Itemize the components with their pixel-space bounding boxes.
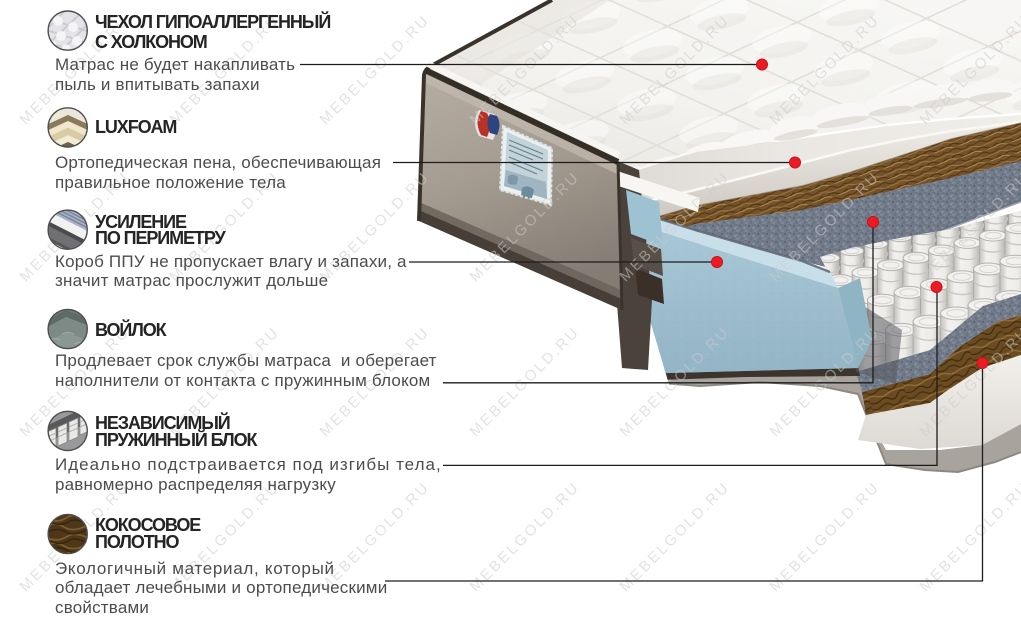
- svg-text:MEBELGOLD.RU: MEBELGOLD.RU: [766, 478, 883, 595]
- svg-text:MEBELGOLD.RU: MEBELGOLD.RU: [466, 323, 583, 440]
- svg-text:MEBELGOLD.RU: MEBELGOLD.RU: [616, 478, 733, 595]
- svg-text:MEBELGOLD.RU: MEBELGOLD.RU: [316, 11, 433, 128]
- svg-text:MEBELGOLD.RU: MEBELGOLD.RU: [466, 478, 583, 595]
- svg-text:MEBELGOLD.RU: MEBELGOLD.RU: [916, 478, 1021, 595]
